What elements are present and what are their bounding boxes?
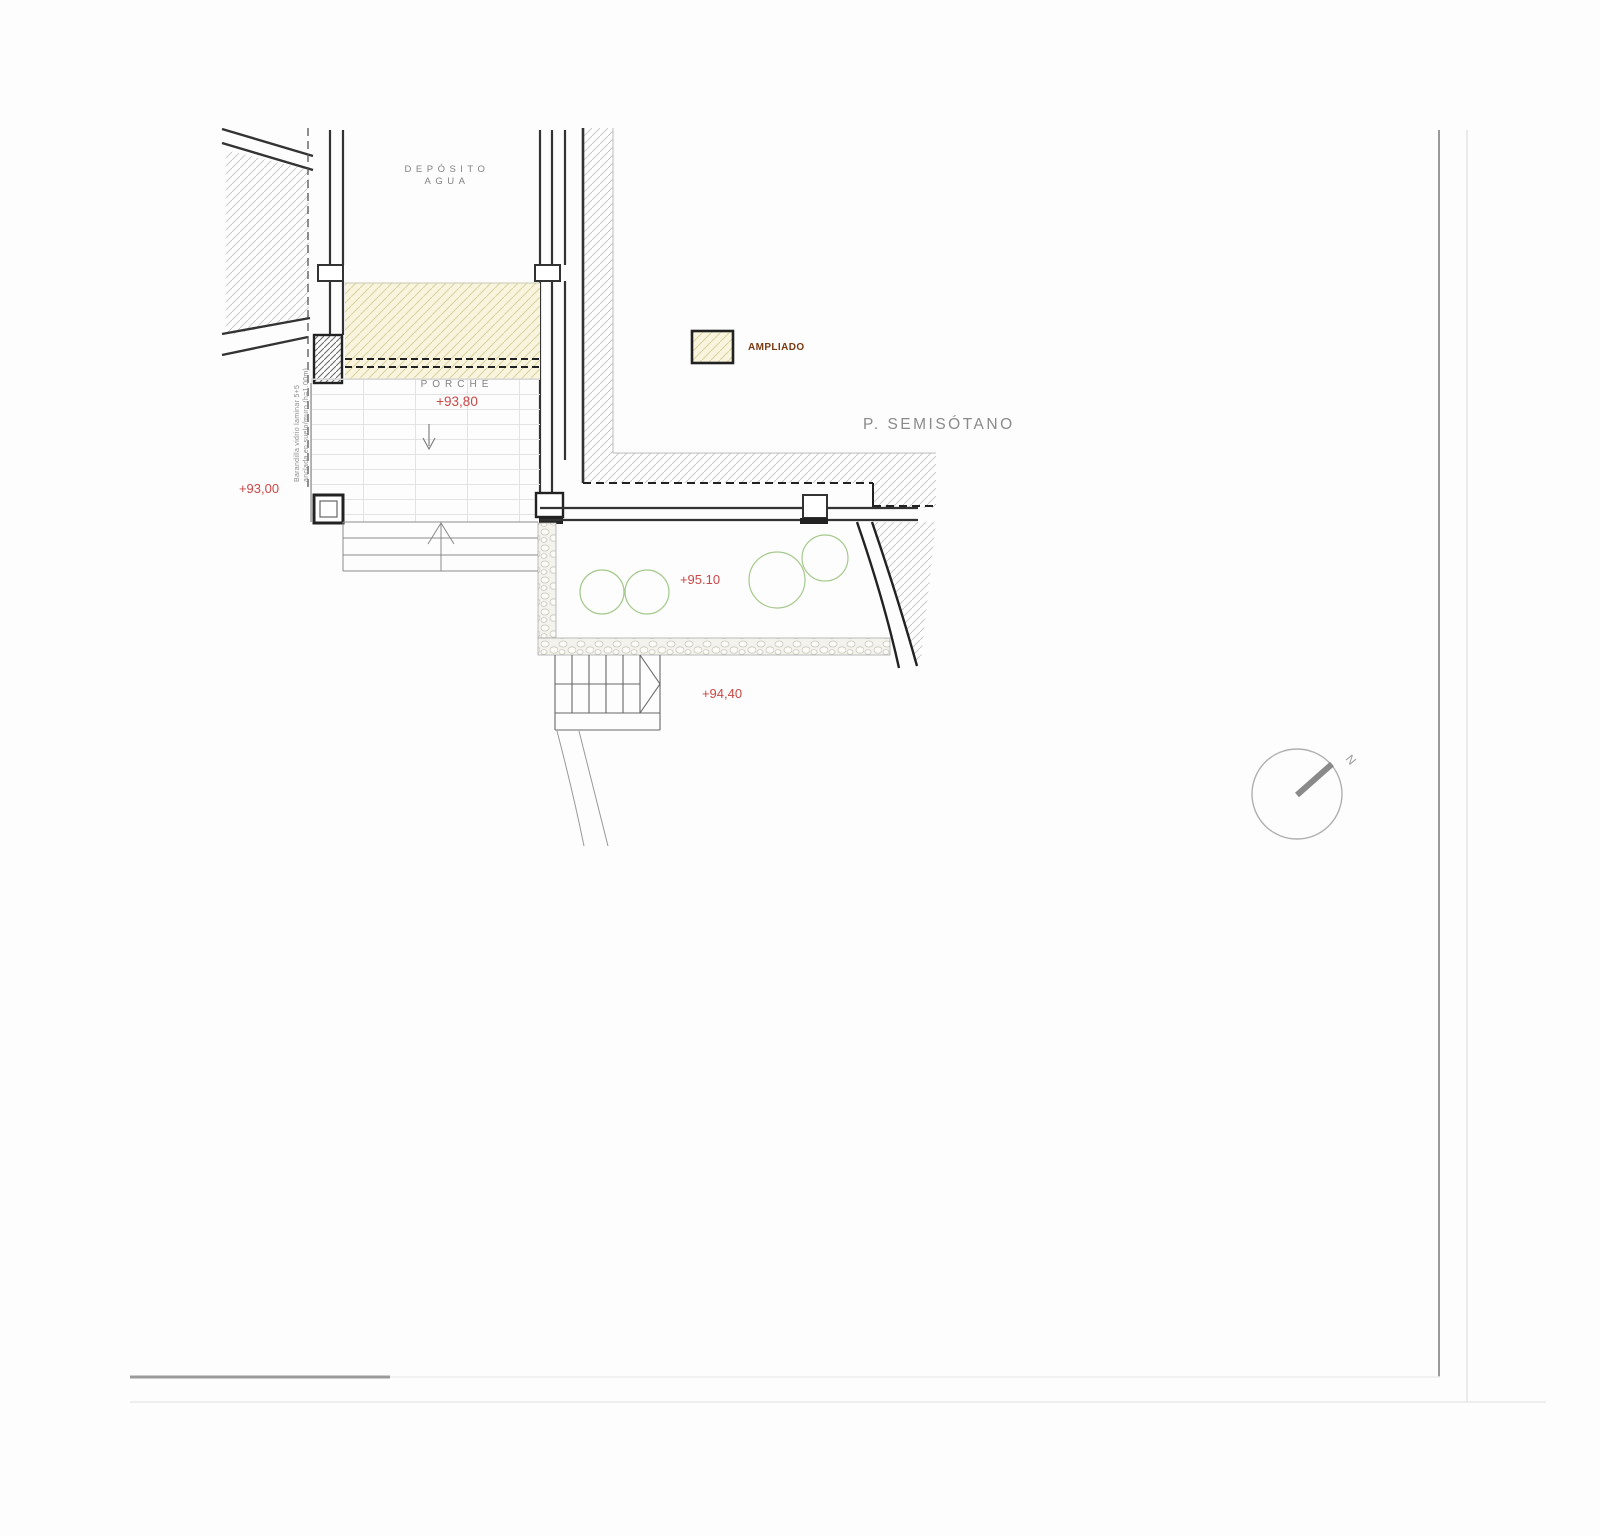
column bbox=[314, 495, 343, 523]
terrain-hatch-area bbox=[226, 150, 309, 336]
column bbox=[803, 495, 827, 518]
level-94-label: +94,40 bbox=[702, 686, 742, 701]
exterior-stairs bbox=[555, 655, 660, 730]
railing-note-line1: Barandilla vidrio laminar 5+5 bbox=[294, 385, 301, 482]
column bbox=[535, 265, 560, 281]
ampliado-extension-band bbox=[345, 283, 540, 379]
column bbox=[318, 265, 343, 281]
slope-wall-line bbox=[222, 129, 313, 156]
slope-wall-line bbox=[222, 337, 308, 355]
north-compass: N bbox=[1252, 749, 1359, 839]
porche-label: PORCHE bbox=[421, 379, 494, 390]
legend-swatch bbox=[692, 331, 733, 363]
legend-label: AMPLIADO bbox=[748, 342, 805, 353]
curved-garden-path bbox=[557, 731, 608, 846]
masonry-pillar-section bbox=[314, 335, 342, 383]
legend-ampliado: AMPLIADO bbox=[692, 331, 805, 363]
column bbox=[536, 493, 563, 517]
deposito-agua-label-line2: AGUA bbox=[425, 176, 470, 187]
tree-circle bbox=[749, 552, 805, 608]
semisotano-wall-hatch bbox=[583, 128, 936, 509]
porche-level-label: +93,80 bbox=[436, 394, 478, 409]
site-plan-drawing: DEPÓSITO AGUA PORCHE +93,80 +93,00 Baran… bbox=[0, 0, 1600, 1536]
railing-note-line2: anclada en suelo/muro (h=1.00m) bbox=[303, 368, 310, 482]
tree-circle bbox=[625, 570, 669, 614]
level-95-label: +95.10 bbox=[680, 572, 720, 587]
planter bbox=[538, 523, 890, 655]
lower-wall bbox=[540, 495, 918, 524]
stair-break-line bbox=[640, 655, 660, 684]
planter-stone-border bbox=[538, 523, 556, 638]
wall-stub bbox=[800, 518, 828, 524]
deposito-agua-label-line1: DEPÓSITO bbox=[405, 164, 490, 175]
stair-break-line bbox=[640, 684, 660, 713]
compass-needle bbox=[1297, 764, 1332, 795]
porche-area bbox=[311, 379, 540, 522]
semisotano-label: P. SEMISÓTANO bbox=[863, 416, 1015, 433]
compass-north-label: N bbox=[1343, 752, 1359, 768]
wall-hatch-area bbox=[583, 128, 936, 508]
entry-steps bbox=[343, 522, 538, 571]
ampliado-hatch-area bbox=[345, 283, 540, 379]
tree-circle bbox=[580, 570, 624, 614]
level-93-label: +93,00 bbox=[239, 481, 279, 496]
planter-stone-border bbox=[538, 638, 890, 655]
porch-deck-floor bbox=[311, 379, 540, 522]
floor-plan-canvas: DEPÓSITO AGUA PORCHE +93,80 +93,00 Baran… bbox=[0, 0, 1600, 1536]
tree-circle bbox=[802, 535, 848, 581]
